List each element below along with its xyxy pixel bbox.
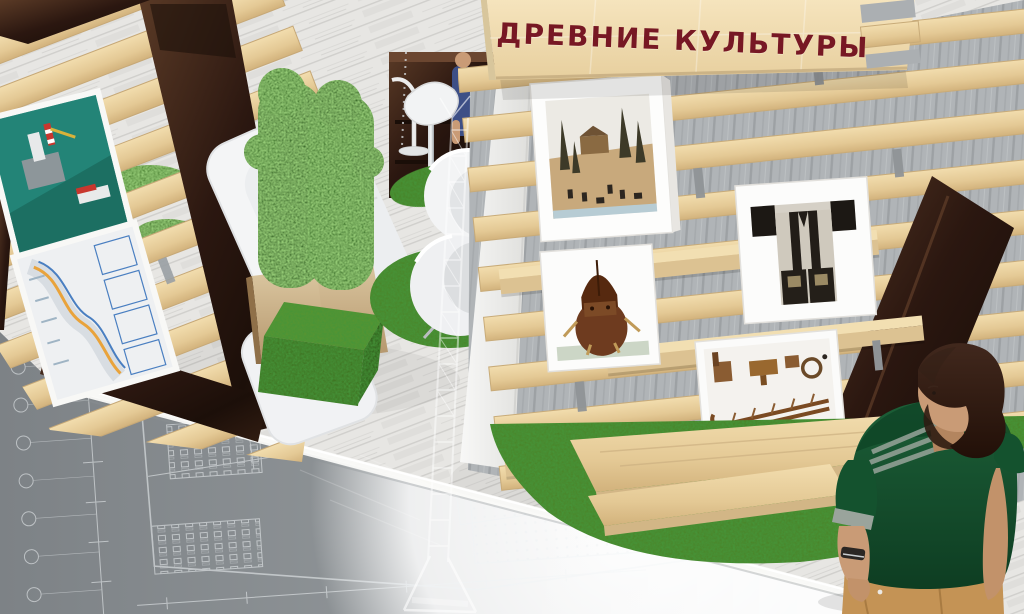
carved-idol-exhibit <box>540 244 660 372</box>
grass-cube-table <box>258 302 384 406</box>
scene-canvas <box>0 0 1024 614</box>
exhibition-render: ДРЕВНИЕ КУЛЬТУРЫ <box>0 0 1024 614</box>
ornamented-robe-exhibit <box>735 177 876 324</box>
seat-block-2 <box>152 519 263 574</box>
eye <box>932 391 936 395</box>
diorama-exhibit <box>530 74 681 241</box>
